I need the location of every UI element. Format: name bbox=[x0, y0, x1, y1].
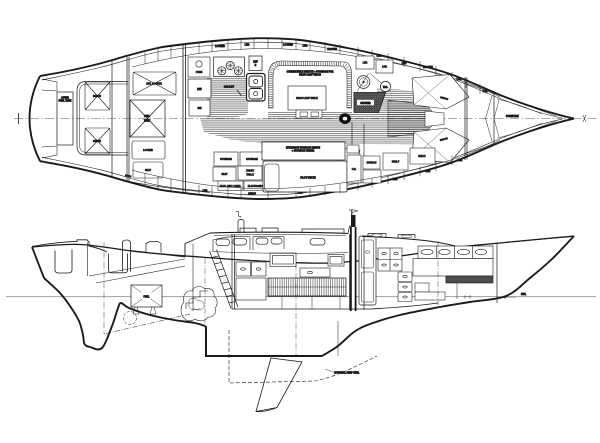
svg-text:CONVERTIBLE DINETTE + STOWAGE: CONVERTIBLE DINETTE + STOWAGE FOR bbox=[287, 71, 334, 74]
svg-text:LKR: LKR bbox=[245, 45, 250, 47]
svg-text:SEAT: SEAT bbox=[222, 173, 229, 176]
svg-text:BUREAU: BUREAU bbox=[367, 162, 377, 165]
svg-text:SHELF: SHELF bbox=[392, 162, 400, 164]
svg-text:BERTH: BERTH bbox=[93, 141, 101, 143]
svg-text:FUEL: FUEL bbox=[144, 116, 151, 118]
svg-text:TANK: TANK bbox=[144, 120, 151, 123]
svg-text:LKR: LKR bbox=[458, 160, 463, 162]
svg-text:REF: REF bbox=[197, 89, 202, 91]
svg-text:LOCKER: LOCKER bbox=[215, 46, 225, 48]
svg-text:BIN: BIN bbox=[198, 108, 202, 110]
svg-text:OVEN: OVEN bbox=[196, 72, 203, 74]
svg-text:OPTIONAL DEEP KEEL: OPTIONAL DEEP KEEL bbox=[334, 372, 360, 375]
svg-text:DROP-LEAF TABLE: DROP-LEAF TABLE bbox=[296, 97, 318, 100]
svg-text:SEAT: SEAT bbox=[145, 169, 152, 172]
svg-text:LKR: LKR bbox=[426, 171, 431, 173]
svg-text:PILOT BERTH: PILOT BERTH bbox=[300, 178, 316, 180]
svg-text:LKR: LKR bbox=[363, 63, 368, 65]
svg-text:REF: REF bbox=[253, 62, 258, 64]
svg-text:LKR: LKR bbox=[457, 79, 462, 81]
svg-text:EXTENSION TRANSOM BERTH: EXTENSION TRANSOM BERTH bbox=[286, 146, 320, 149]
svg-text:FOREPEAK: FOREPEAK bbox=[506, 115, 519, 118]
svg-text:LOCKER: LOCKER bbox=[143, 150, 153, 152]
svg-text:SHELF: SHELF bbox=[418, 156, 426, 158]
svg-text:STOWAGE: STOWAGE bbox=[220, 158, 232, 161]
svg-text:DROP-LEAF TABLE: DROP-LEAF TABLE bbox=[299, 74, 321, 77]
svg-text:LKR: LKR bbox=[303, 46, 308, 48]
svg-text:CHART: CHART bbox=[246, 170, 255, 173]
svg-text:SHELF: SHELF bbox=[248, 194, 256, 196]
svg-text:SHOWER: SHOWER bbox=[360, 103, 371, 105]
svg-text:+ STOWAGE UNDER: + STOWAGE UNDER bbox=[292, 150, 315, 153]
svg-text:LKR: LKR bbox=[483, 91, 488, 93]
svg-text:SAIL LOCKER: SAIL LOCKER bbox=[146, 83, 162, 86]
svg-text:FUEL: FUEL bbox=[144, 296, 151, 298]
svg-text:LKR: LKR bbox=[377, 56, 382, 58]
svg-text:FUEL TANK: FUEL TANK bbox=[59, 100, 72, 103]
svg-text:BERTH: BERTH bbox=[93, 96, 101, 98]
svg-text:LKR: LKR bbox=[382, 67, 387, 69]
svg-text:W.C.: W.C. bbox=[383, 87, 388, 89]
svg-text:LKR: LKR bbox=[393, 179, 398, 181]
svg-text:TABLE: TABLE bbox=[246, 174, 254, 177]
svg-text:ELECTRONICS: ELECTRONICS bbox=[248, 186, 265, 188]
svg-text:LKR: LKR bbox=[298, 193, 303, 195]
svg-text:C.B.: C.B. bbox=[352, 169, 357, 171]
svg-text:LKR: LKR bbox=[402, 63, 407, 65]
svg-text:LOCKER: LOCKER bbox=[283, 45, 293, 47]
svg-text:AFTER: AFTER bbox=[61, 97, 69, 100]
svg-text:ALCOVE: ALCOVE bbox=[327, 48, 337, 51]
svg-text:STOWAGE: STOWAGE bbox=[246, 158, 258, 161]
svg-text:LOCKER: LOCKER bbox=[423, 67, 433, 69]
svg-text:DWL: DWL bbox=[521, 294, 527, 296]
svg-text:GALLEY: GALLEY bbox=[224, 84, 235, 88]
